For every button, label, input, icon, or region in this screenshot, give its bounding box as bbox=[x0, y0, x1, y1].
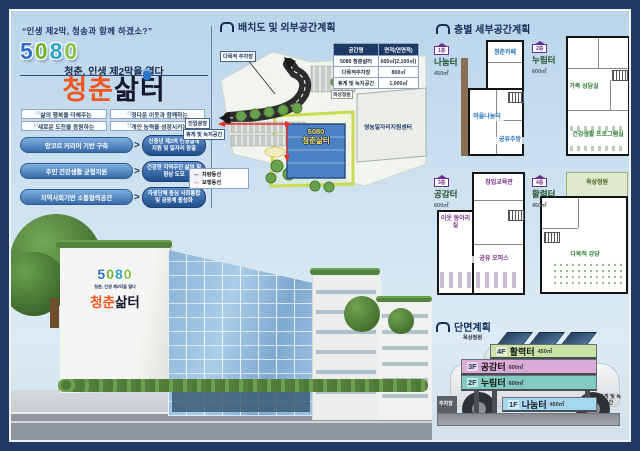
floor-level: 1F bbox=[508, 400, 519, 409]
value-box: 새로운 도전을 응원하는 bbox=[21, 121, 107, 131]
roof-greenery bbox=[56, 240, 172, 248]
logo-letter: 0 bbox=[35, 38, 50, 64]
section-floor-3f: 3F 공감터 600㎡ bbox=[461, 359, 597, 375]
sign-logo-5080: 5080 bbox=[97, 266, 132, 282]
floor-area: 450㎡ bbox=[434, 69, 449, 77]
site-plan-header: 배치도 및 외부공간계획 bbox=[220, 19, 336, 34]
table-cell: 다목적주차장 bbox=[334, 67, 379, 78]
plan2-partition bbox=[568, 68, 628, 69]
stairs-icon bbox=[508, 92, 524, 103]
roof-greenery bbox=[376, 296, 432, 302]
hall-seats bbox=[552, 262, 622, 288]
logo-letter: 8 bbox=[50, 38, 65, 64]
floor-badge-4f: 4층 활력터 450㎡ bbox=[532, 174, 568, 209]
arrow-icon: > bbox=[134, 166, 140, 177]
garden-label: 목성정원 bbox=[331, 90, 353, 99]
floor-badge-icon: 4층 bbox=[532, 178, 547, 187]
floor-area: 600㎡ bbox=[532, 67, 547, 75]
sign-name-orange: 청춘 bbox=[90, 295, 115, 310]
floor-area: 450㎡ bbox=[550, 400, 565, 408]
room-label: 이웃 동아리실 bbox=[439, 216, 472, 230]
room-label: 가족 상담실 bbox=[569, 84, 599, 91]
section-plan-header: 단면계획 bbox=[436, 319, 491, 334]
floor-name: 공감터 bbox=[481, 360, 506, 373]
strategy-goal: 지역사회기반 소통협력공간 bbox=[20, 189, 133, 205]
table-row: 다목적주차장 800㎡ bbox=[334, 67, 419, 78]
support-center-label: 영농일자리지원센터 bbox=[352, 122, 424, 131]
room-label: 옥상정원 bbox=[576, 180, 618, 187]
floor-badge-icon: 1층 bbox=[434, 46, 449, 55]
pillar bbox=[474, 391, 479, 413]
floor-plans-title: 층별 세부공간계획 bbox=[454, 21, 530, 36]
plan4-partition bbox=[542, 228, 578, 229]
floor-area: 450㎡ bbox=[532, 201, 547, 209]
site-building-label-line2: 청춘삶터 bbox=[288, 136, 344, 145]
floor-area: 600㎡ bbox=[509, 363, 524, 371]
bushes bbox=[58, 379, 428, 392]
logo-letter: 5 bbox=[97, 266, 106, 282]
pillar bbox=[492, 391, 497, 413]
room-label: 마을나눔터 bbox=[470, 114, 504, 121]
plan1-partition bbox=[488, 62, 522, 63]
ground bbox=[437, 413, 620, 426]
plan2-partition bbox=[610, 80, 611, 110]
tree-trunk bbox=[50, 298, 59, 328]
plan2-partition bbox=[598, 38, 599, 68]
logo-letter: 0 bbox=[64, 38, 79, 64]
legend-label: 차량동선 bbox=[202, 171, 221, 178]
table-header-row: 공간명 면적(연면적) bbox=[334, 44, 419, 56]
plan4-partition bbox=[578, 198, 579, 228]
section-floor-4f: 4F 활력터 450㎡ bbox=[490, 344, 597, 359]
arch-icon bbox=[436, 322, 450, 332]
logo-letter: 0 bbox=[124, 266, 133, 282]
floor-badge-2f: 2층 누림터 600㎡ bbox=[532, 40, 568, 75]
logo-letter: 0 bbox=[106, 266, 115, 282]
floor-area: 450㎡ bbox=[538, 347, 553, 355]
parking-label: 주차장 bbox=[439, 400, 453, 407]
room-label: 다목적 강당 bbox=[558, 252, 612, 259]
arch-icon bbox=[436, 24, 450, 34]
table-cell: 휴게 및 녹지공간 bbox=[334, 78, 379, 89]
table-cell: 800㎡ bbox=[378, 67, 418, 78]
pedestrian-arrow-icon: ↔ bbox=[193, 179, 200, 186]
floor-name: 활력터 bbox=[510, 345, 535, 358]
plan1-upper-wall bbox=[486, 40, 524, 90]
vehicle-arrow-icon: ↔ bbox=[193, 171, 200, 178]
slogan-quote: “인생 제2막, 청송과 함께 하겠소?” bbox=[22, 25, 214, 37]
floor-name: 활력터 bbox=[532, 188, 555, 200]
plan2-partition bbox=[568, 110, 628, 111]
program-seats bbox=[570, 146, 626, 151]
floor-name: 공감터 bbox=[434, 188, 457, 200]
project-title: 청춘삶터 bbox=[20, 77, 208, 104]
floor-name: 누림터 bbox=[481, 376, 506, 389]
floor-name: 누림터 bbox=[532, 54, 555, 66]
table-cell: 600㎡(2,100㎡) bbox=[378, 56, 418, 67]
plan3-partition bbox=[474, 244, 523, 245]
arrow-icon: > bbox=[134, 140, 140, 151]
arrow-icon: > bbox=[134, 192, 140, 203]
roof-greenery bbox=[310, 268, 380, 275]
floor-level: 3F bbox=[467, 362, 478, 371]
label-plaza: 진입광장 bbox=[185, 118, 210, 129]
floor-level: 2F bbox=[467, 378, 478, 387]
stairs-icon bbox=[544, 232, 560, 243]
lane-line bbox=[9, 421, 432, 423]
table-row: 휴게 및 녹지공간 1,000㎡ bbox=[334, 78, 419, 89]
plan1-partition bbox=[496, 90, 497, 154]
site-building-label-line1: 5080 bbox=[288, 127, 344, 136]
title-part-orange: 청춘 bbox=[62, 75, 114, 105]
rest-green-label: 휴게 및 녹지공간 bbox=[599, 394, 625, 406]
office-desks bbox=[440, 272, 520, 288]
strategy-outcome: 자생단체 중심 사회통합 및 공동체 활성화 bbox=[142, 187, 206, 208]
room-label: 청춘카페 bbox=[488, 50, 522, 57]
floor-level: 4F bbox=[496, 347, 507, 356]
room-label: 건강생활 프로그램실 bbox=[569, 132, 627, 139]
floor-badge-icon: 3층 bbox=[434, 178, 449, 187]
roof-garden-label: 옥상정원 bbox=[463, 335, 482, 341]
table-cell: 1,000㎡ bbox=[378, 78, 418, 89]
logo-letter: 5 bbox=[20, 38, 35, 64]
section-floor-2f: 2F 누림터 600㎡ bbox=[461, 375, 597, 391]
floor-name: 나눔터 bbox=[434, 56, 457, 68]
room-label: 공유주방 bbox=[496, 137, 524, 144]
tree bbox=[344, 296, 380, 332]
building-signage: 5080 청춘, 인생 제2막을 열다 청춘삶터 bbox=[66, 266, 164, 311]
strategy-goal: 앙코르 커리어 기반 구축 bbox=[20, 137, 133, 153]
arch-icon bbox=[220, 22, 234, 32]
stairs-icon bbox=[508, 210, 524, 221]
strategy-goal: 주민 건강생활 균형지원 bbox=[20, 163, 133, 179]
legend-row-vehicle: ↔ 차량동선 bbox=[193, 171, 245, 178]
legend-label: 보행동선 bbox=[202, 179, 221, 186]
table-row: 5080 청춘삶터 600㎡(2,100㎡) bbox=[334, 56, 419, 67]
program-seats bbox=[570, 126, 626, 131]
title-part-dark: 삶터 bbox=[114, 75, 166, 105]
logo-5080: 5080 bbox=[20, 38, 79, 65]
section-plan-title: 단면계획 bbox=[454, 319, 491, 334]
site-building-label: 5080 청춘삶터 bbox=[288, 127, 344, 145]
badge-icon bbox=[143, 69, 151, 80]
label-parking: 다목적 주차장 bbox=[220, 51, 256, 62]
sign-name: 청춘삶터 bbox=[90, 291, 140, 311]
sign-subtitle: 청춘, 인생 제2막을 열다 bbox=[94, 284, 136, 290]
floor-badge-icon: 2층 bbox=[532, 44, 547, 53]
site-plan-title: 배치도 및 외부공간계획 bbox=[238, 19, 336, 34]
area-table: 공간명 면적(연면적) 5080 청춘삶터 600㎡(2,100㎡) 다목적주차… bbox=[333, 43, 419, 89]
sign-name-dark: 삶터 bbox=[115, 295, 140, 310]
table-cell: 5080 청춘삶터 bbox=[334, 56, 379, 67]
legend-row-pedestrian: ↔ 보행동선 bbox=[193, 179, 245, 186]
stairs-icon bbox=[612, 70, 628, 81]
value-box: 삶의 행복을 더해주는 bbox=[21, 109, 107, 119]
section-floor-1f: 1F 나눔터 450㎡ bbox=[502, 397, 597, 412]
room-label: 창업교육관 bbox=[480, 180, 518, 187]
tree bbox=[388, 308, 414, 334]
floor-plans-header: 층별 세부공간계획 bbox=[436, 21, 530, 36]
logo-letter: 8 bbox=[115, 266, 124, 282]
plan3-partition bbox=[474, 200, 523, 201]
table-header: 공간명 bbox=[334, 44, 379, 56]
table-header: 면적(연면적) bbox=[378, 44, 418, 56]
floor-badge-1f: 1층 나눔터 450㎡ bbox=[434, 42, 470, 77]
floor-badge-3f: 3층 공감터 600㎡ bbox=[434, 174, 470, 209]
presentation-board: “인생 제2막, 청송과 함께 하겠소?” 5080 청춘, 인생 제2막을 열… bbox=[0, 0, 640, 451]
floor-name: 나눔터 bbox=[522, 398, 547, 411]
floor-area: 600㎡ bbox=[509, 379, 524, 387]
label-green: 휴게 및 녹지공간 bbox=[183, 129, 225, 140]
floor-area: 600㎡ bbox=[434, 201, 449, 209]
room-label: 공유 오피스 bbox=[470, 256, 518, 263]
circulation-legend: ↔ 차량동선 ↔ 보행동선 bbox=[189, 168, 249, 189]
